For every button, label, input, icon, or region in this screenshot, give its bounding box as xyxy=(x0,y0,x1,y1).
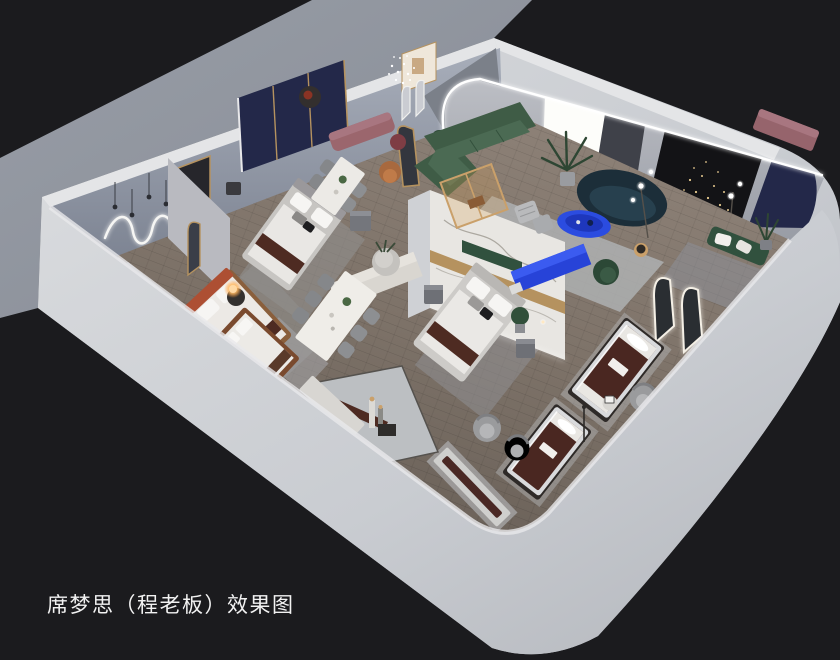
rendering-canvas: 席梦思（程老板）效果图 xyxy=(0,0,840,660)
side-table-round xyxy=(299,86,321,108)
lounge-chair-cognac xyxy=(379,161,401,183)
showroom-rendering xyxy=(0,0,840,660)
small-side-table xyxy=(603,396,618,411)
chair-maroon xyxy=(390,134,406,150)
caption-title: 席梦思（程老板）效果图 xyxy=(47,589,295,619)
green-barrel-chair xyxy=(593,259,619,285)
arched-mirror-west xyxy=(188,222,200,275)
gold-side-table xyxy=(634,243,648,257)
